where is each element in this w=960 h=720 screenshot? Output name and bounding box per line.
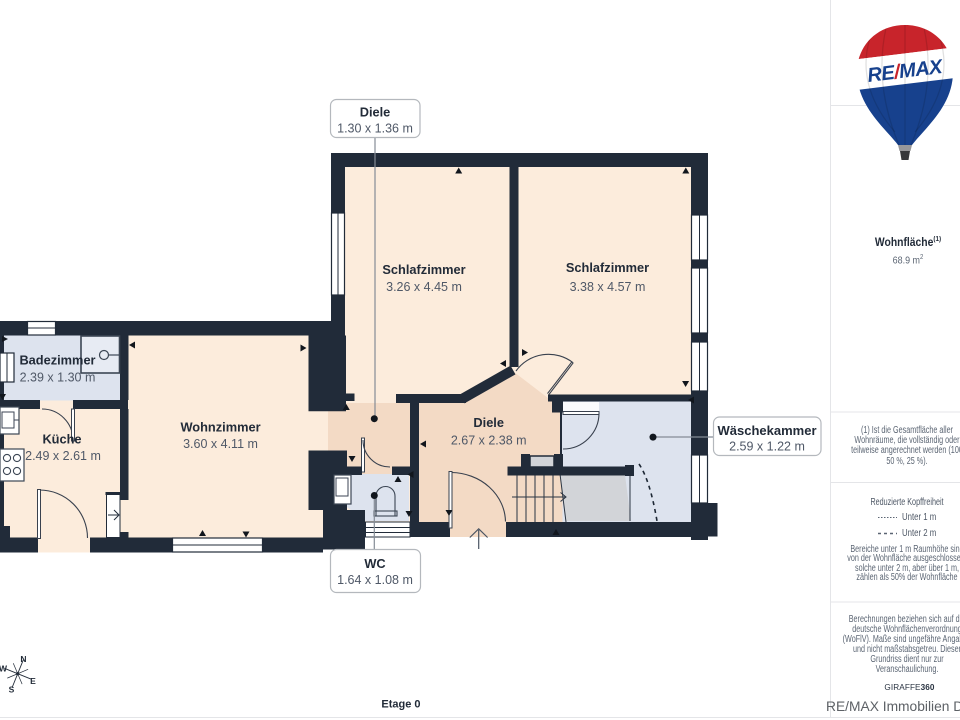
svg-text:2.59 x 1.22 m: 2.59 x 1.22 m [729, 440, 805, 454]
svg-text:Schlafzimmer: Schlafzimmer [566, 260, 649, 275]
svg-text:2.67 x 2.38 m: 2.67 x 2.38 m [451, 434, 527, 448]
svg-text:WC: WC [364, 556, 385, 571]
svg-text:E: E [30, 676, 36, 686]
svg-text:Küche: Küche [42, 432, 81, 447]
svg-text:2.49 x 2.61 m: 2.49 x 2.61 m [25, 449, 101, 463]
svg-text:Wäschekammer: Wäschekammer [718, 423, 817, 438]
svg-text:3.60 x 4.11 m: 3.60 x 4.11 m [183, 437, 258, 451]
svg-text:N: N [20, 654, 26, 664]
svg-text:3.26 x 4.45 m: 3.26 x 4.45 m [386, 280, 462, 294]
svg-text:1.30 x 1.36 m: 1.30 x 1.36 m [337, 122, 413, 136]
svg-text:Diele: Diele [473, 415, 504, 430]
svg-text:Etage 0: Etage 0 [381, 699, 420, 711]
svg-text:W: W [0, 664, 8, 674]
svg-text:3.38 x 4.57 m: 3.38 x 4.57 m [570, 280, 646, 294]
svg-text:S: S [9, 685, 15, 695]
svg-text:Badezimmer: Badezimmer [19, 353, 95, 368]
svg-text:Diele: Diele [360, 105, 391, 120]
svg-text:Wohnzimmer: Wohnzimmer [180, 420, 260, 435]
svg-text:Schlafzimmer: Schlafzimmer [382, 262, 465, 277]
svg-text:1.64 x 1.08 m: 1.64 x 1.08 m [337, 573, 413, 587]
svg-text:2.39 x 1.30 m: 2.39 x 1.30 m [20, 371, 96, 385]
